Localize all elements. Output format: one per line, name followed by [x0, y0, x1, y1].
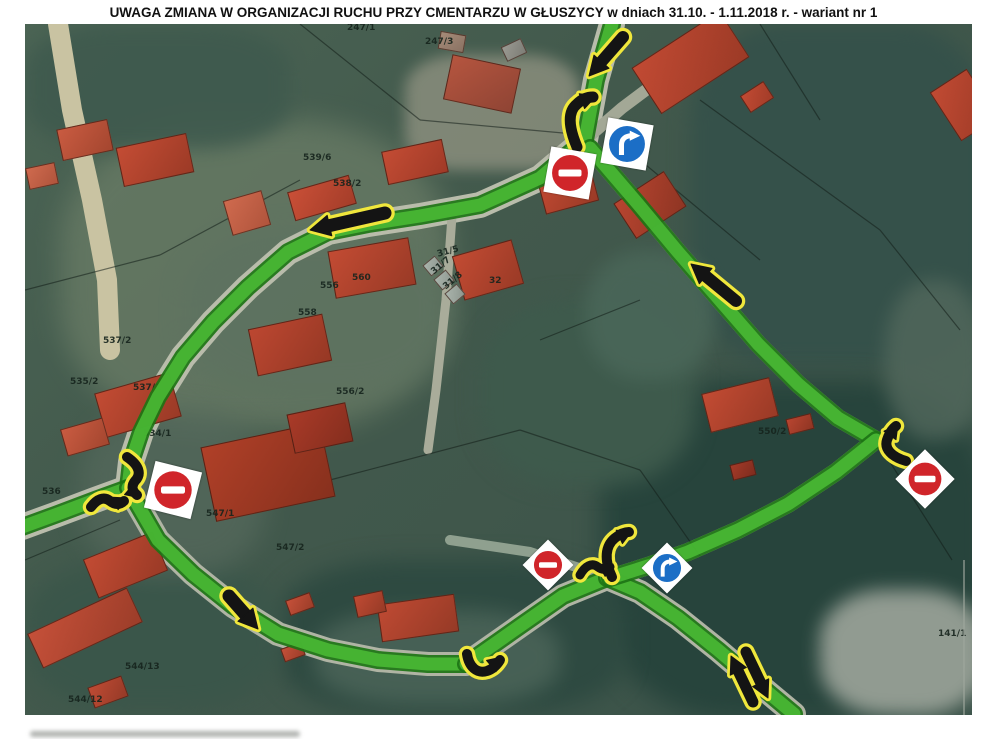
- page-title: UWAGA ZMIANA W ORGANIZACJI RUCHU PRZY CM…: [110, 5, 878, 20]
- terrain-patch: [185, 230, 450, 395]
- parcel-label: 558: [298, 308, 317, 318]
- building: [452, 239, 524, 300]
- building: [287, 175, 357, 221]
- arrow-outline: [324, 213, 385, 227]
- parcel-label: 31/8: [441, 270, 464, 292]
- building: [631, 24, 749, 114]
- parcel-label: 537/1: [133, 383, 161, 393]
- direction-arrow: [736, 667, 753, 702]
- title-bar: UWAGA ZMIANA W ORGANIZACJI RUCHU PRZY CM…: [0, 0, 987, 24]
- no-entry-sign: [543, 146, 596, 199]
- cadastral-line: [330, 430, 520, 480]
- route-segment: [607, 578, 794, 714]
- aerial-map-image: 247/1247/3539/6538/231/531/731/832556560…: [25, 24, 972, 715]
- turn-right-icon: [604, 121, 650, 167]
- arrow-head: [579, 94, 596, 109]
- no-entry-icon: [547, 150, 593, 196]
- direction-arrow: [570, 97, 593, 147]
- parcel-label: 560: [352, 273, 371, 283]
- building: [87, 676, 128, 709]
- terrain-patch: [885, 280, 972, 440]
- building: [25, 162, 59, 190]
- route-segment: [466, 578, 607, 664]
- terrain-patch: [480, 300, 695, 485]
- cadastral-line: [880, 230, 960, 330]
- road: [58, 24, 110, 350]
- route-segment: [25, 488, 128, 532]
- building: [116, 133, 195, 187]
- arrow-head: [616, 530, 632, 543]
- parcel-label: 247/1: [347, 24, 375, 33]
- terrain-patch: [25, 24, 290, 149]
- building: [701, 377, 779, 433]
- parcel-label: 556/2: [336, 387, 364, 397]
- arrow-head: [753, 679, 769, 698]
- turn-right-sign: [642, 543, 693, 594]
- building: [613, 171, 686, 239]
- no-entry-sign: [144, 461, 202, 519]
- building: [94, 372, 182, 438]
- cadastral-line: [640, 470, 700, 556]
- parcel-label: 31/5: [436, 244, 460, 259]
- arrow-head: [884, 424, 898, 440]
- direction-arrow: [580, 565, 610, 575]
- no-entry-sign: [895, 449, 954, 508]
- building: [930, 69, 972, 142]
- cadastral-line: [420, 120, 585, 135]
- scan-edge-line: [963, 560, 965, 715]
- terrain-patch: [820, 590, 972, 715]
- cadastral-line: [25, 520, 120, 560]
- building: [444, 283, 465, 304]
- arrow-head: [730, 656, 746, 675]
- parcel-label: 550/2: [758, 427, 786, 437]
- terrain-patch: [600, 380, 972, 715]
- parcel-label: 544/12: [68, 695, 103, 705]
- arrow-head: [616, 530, 632, 543]
- building: [353, 590, 387, 618]
- direction-arrow: [467, 654, 500, 672]
- arrow-outline: [467, 654, 500, 672]
- building: [286, 402, 353, 454]
- parcel-label: 547/2: [276, 543, 304, 553]
- parcel-label: 539/6: [303, 153, 331, 163]
- arrow-head: [579, 94, 596, 109]
- building: [729, 459, 756, 480]
- direction-arrow: [598, 37, 623, 66]
- road: [428, 216, 452, 450]
- building: [501, 38, 528, 62]
- arrow-outline: [736, 667, 753, 702]
- building: [285, 592, 315, 616]
- arrow-head: [691, 264, 712, 284]
- cadastral-line: [700, 100, 880, 230]
- cadastral-line: [640, 160, 760, 260]
- arrow-outline: [598, 37, 623, 66]
- parcel-label: 534/1: [143, 429, 171, 439]
- direction-arrow: [886, 426, 906, 461]
- arrow-head: [310, 215, 332, 235]
- route-segment: [128, 24, 612, 488]
- building: [443, 54, 521, 114]
- building: [60, 417, 110, 456]
- building: [422, 255, 443, 276]
- building: [438, 31, 467, 53]
- building: [82, 531, 167, 598]
- parcel-label: 547/1: [206, 509, 234, 519]
- route-segment: [590, 148, 876, 440]
- parcel-label: 538/2: [333, 179, 361, 189]
- no-entry-icon: [530, 547, 566, 583]
- cadastral-line: [160, 180, 300, 255]
- parcel-label: 32: [489, 276, 502, 286]
- arrow-outline: [570, 97, 593, 147]
- no-entry-icon: [149, 466, 197, 514]
- arrow-head: [125, 483, 140, 498]
- building: [433, 269, 454, 290]
- arrow-head: [730, 656, 746, 675]
- building: [280, 642, 305, 663]
- route-segment: [590, 148, 876, 440]
- building: [327, 237, 416, 299]
- direction-arrow: [91, 499, 124, 507]
- arrow-head: [598, 564, 613, 576]
- arrow-head: [112, 497, 127, 509]
- parcel-label: 537/2: [103, 336, 131, 346]
- arrow-outline: [91, 499, 124, 507]
- cadastral-line: [25, 255, 160, 290]
- arrow-outline: [701, 272, 736, 301]
- terrain-patch: [60, 120, 450, 430]
- arrow-head: [884, 424, 898, 440]
- parcel-label: 31/7: [429, 255, 452, 277]
- parcel-label: 556: [320, 281, 339, 291]
- parcel-label: 535/2: [70, 377, 98, 387]
- route-segment: [607, 578, 794, 714]
- scanned-traffic-map-page: UWAGA ZMIANA W ORGANIZACJI RUCHU PRZY CM…: [0, 0, 987, 739]
- arrow-head: [238, 608, 258, 629]
- building: [223, 190, 271, 236]
- building: [785, 413, 814, 435]
- route-segment: [25, 488, 128, 532]
- direction-arrow: [229, 596, 249, 619]
- terrain-patch: [25, 560, 280, 710]
- parcel-label: 544/13: [125, 662, 160, 672]
- scan-smudge: [30, 731, 300, 737]
- parcel-label: 247/3: [425, 37, 453, 47]
- cadastral-line: [540, 300, 640, 340]
- arrow-head: [589, 55, 609, 76]
- terrain-patch: [315, 610, 560, 705]
- route-overlay: [25, 24, 972, 715]
- building: [56, 119, 114, 161]
- building: [27, 588, 143, 669]
- route-segment: [128, 24, 612, 488]
- terrain-patch: [280, 560, 625, 715]
- road: [128, 488, 794, 714]
- cadastral-line: [760, 24, 820, 120]
- arrow-outline: [886, 426, 906, 461]
- arrow-head: [691, 264, 712, 284]
- building: [740, 81, 774, 113]
- direction-arrow: [746, 652, 763, 687]
- cadastral-line: [300, 24, 420, 120]
- arrow-head: [112, 497, 127, 509]
- terrain-patch: [690, 24, 972, 364]
- cadastral-line: [520, 430, 640, 470]
- arrow-head: [487, 657, 502, 672]
- arrow-head: [589, 55, 609, 76]
- arrow-outline: [229, 596, 249, 619]
- no-entry-icon: [904, 458, 946, 500]
- arrow-head: [598, 564, 613, 576]
- arrow-head: [238, 608, 258, 629]
- arrow-head: [125, 483, 140, 498]
- building: [200, 422, 335, 522]
- roads-layer: [25, 24, 972, 715]
- building: [248, 314, 332, 377]
- terrain-patch: [585, 250, 715, 380]
- no-entry-sign: [523, 540, 574, 591]
- direction-arrow: [127, 457, 139, 495]
- road: [590, 148, 876, 578]
- arrow-outline: [580, 565, 610, 575]
- arrow-outline: [746, 652, 763, 687]
- arrow-outline: [607, 532, 629, 577]
- route-segment: [466, 578, 607, 664]
- direction-arrow: [701, 272, 736, 301]
- arrow-head: [487, 657, 502, 672]
- building: [381, 139, 449, 185]
- turn-right-sign: [600, 117, 653, 170]
- arrow-head: [310, 215, 332, 235]
- arrow-outline: [127, 457, 139, 495]
- road: [25, 24, 612, 532]
- arrow-head: [753, 679, 769, 698]
- direction-arrow: [324, 213, 385, 227]
- parcel-label: 536: [42, 487, 61, 497]
- building: [377, 594, 460, 642]
- turn-right-icon: [649, 550, 685, 586]
- direction-arrow: [607, 532, 629, 577]
